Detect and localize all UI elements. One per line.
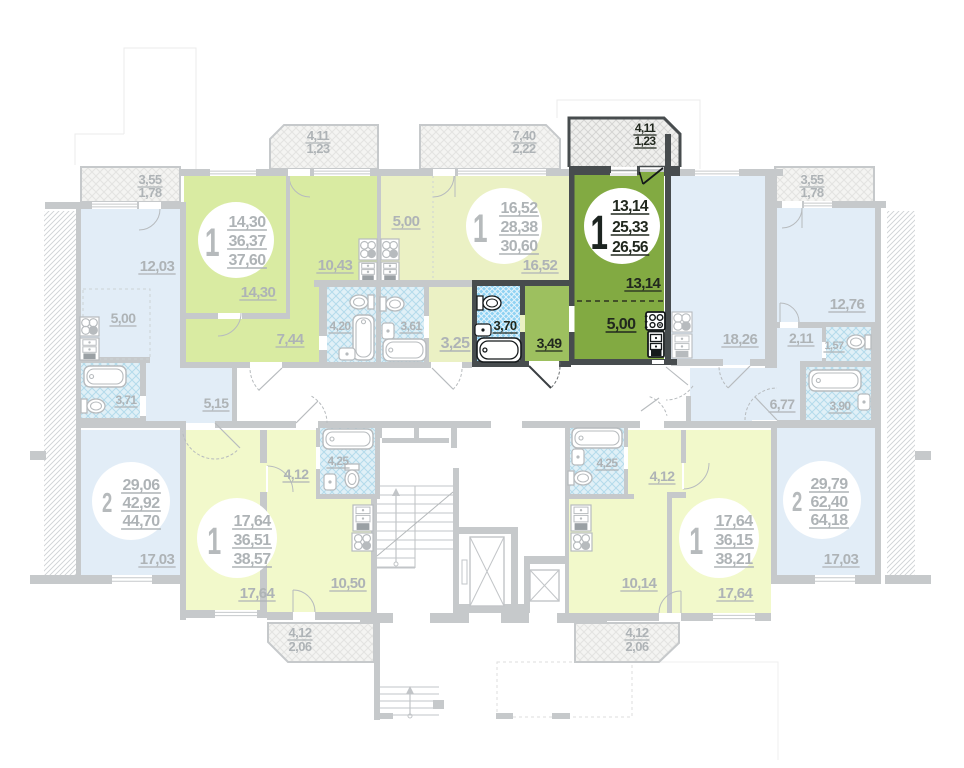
svg-text:14,30: 14,30 (241, 284, 276, 301)
svg-text:25,33: 25,33 (612, 219, 649, 236)
svg-text:12,03: 12,03 (140, 258, 175, 275)
svg-text:29,06: 29,06 (122, 477, 160, 494)
svg-text:36,15: 36,15 (715, 532, 753, 549)
svg-text:37,60: 37,60 (228, 252, 266, 269)
svg-text:30,60: 30,60 (500, 238, 538, 255)
svg-text:3,70: 3,70 (494, 318, 517, 333)
svg-text:1,78: 1,78 (801, 185, 824, 200)
svg-text:1,57: 1,57 (824, 340, 843, 352)
svg-text:13,14: 13,14 (626, 275, 662, 292)
svg-text:5,00: 5,00 (607, 316, 636, 333)
svg-text:17,64: 17,64 (233, 513, 271, 530)
svg-text:1: 1 (207, 520, 221, 562)
svg-text:14,30: 14,30 (228, 214, 266, 231)
svg-text:5,15: 5,15 (204, 395, 230, 411)
svg-text:4,11: 4,11 (635, 121, 656, 135)
svg-text:64,18: 64,18 (810, 512, 848, 529)
svg-text:38,21: 38,21 (715, 551, 753, 568)
svg-text:28,38: 28,38 (500, 219, 538, 236)
svg-text:4,12: 4,12 (284, 466, 310, 482)
svg-text:17,03: 17,03 (824, 551, 859, 568)
svg-text:3,49: 3,49 (537, 335, 563, 351)
svg-text:3,25: 3,25 (441, 335, 470, 352)
svg-text:10,43: 10,43 (318, 257, 353, 274)
svg-text:2: 2 (792, 487, 802, 518)
svg-text:1: 1 (590, 205, 607, 259)
svg-text:42,92: 42,92 (122, 495, 160, 512)
svg-text:17,03: 17,03 (140, 551, 175, 568)
svg-text:17,64: 17,64 (718, 585, 754, 602)
svg-text:3,61: 3,61 (401, 319, 423, 333)
svg-text:6,77: 6,77 (770, 396, 796, 412)
svg-text:4,12: 4,12 (289, 625, 312, 640)
svg-text:4,12: 4,12 (650, 468, 676, 484)
svg-text:4,20: 4,20 (330, 319, 352, 333)
svg-text:44,70: 44,70 (122, 513, 160, 530)
svg-text:36,51: 36,51 (233, 532, 271, 549)
svg-text:17,64: 17,64 (240, 585, 276, 602)
svg-text:18,26: 18,26 (723, 331, 758, 348)
svg-text:62,40: 62,40 (810, 494, 848, 511)
svg-text:10,50: 10,50 (331, 575, 366, 592)
svg-text:38,57: 38,57 (233, 551, 271, 568)
svg-text:1: 1 (689, 520, 703, 562)
svg-text:2,06: 2,06 (289, 639, 312, 654)
svg-text:17,64: 17,64 (715, 513, 753, 530)
svg-text:7,44: 7,44 (277, 331, 305, 348)
svg-text:16,52: 16,52 (500, 200, 538, 217)
svg-text:2,22: 2,22 (513, 141, 536, 156)
svg-text:1,23: 1,23 (635, 134, 657, 148)
svg-text:29,79: 29,79 (810, 476, 848, 493)
svg-text:4,25: 4,25 (597, 456, 619, 470)
svg-text:2,11: 2,11 (789, 330, 814, 346)
svg-text:2,06: 2,06 (626, 639, 649, 654)
svg-text:1,23: 1,23 (307, 141, 330, 156)
svg-text:3,90: 3,90 (830, 399, 852, 413)
svg-text:13,14: 13,14 (612, 198, 649, 215)
svg-text:4,25: 4,25 (328, 454, 350, 468)
svg-text:1: 1 (473, 207, 487, 252)
svg-text:5,00: 5,00 (393, 213, 420, 230)
svg-text:10,14: 10,14 (622, 575, 658, 592)
svg-text:2: 2 (102, 488, 112, 519)
svg-text:3,71: 3,71 (116, 393, 138, 407)
svg-text:1: 1 (205, 221, 219, 266)
svg-text:36,37: 36,37 (228, 233, 266, 250)
svg-text:16,52: 16,52 (523, 257, 558, 274)
svg-text:26,56: 26,56 (612, 239, 649, 256)
svg-text:4,12: 4,12 (626, 625, 649, 640)
svg-text:5,00: 5,00 (111, 310, 137, 326)
svg-text:1,78: 1,78 (139, 185, 162, 200)
svg-text:12,76: 12,76 (830, 296, 865, 313)
